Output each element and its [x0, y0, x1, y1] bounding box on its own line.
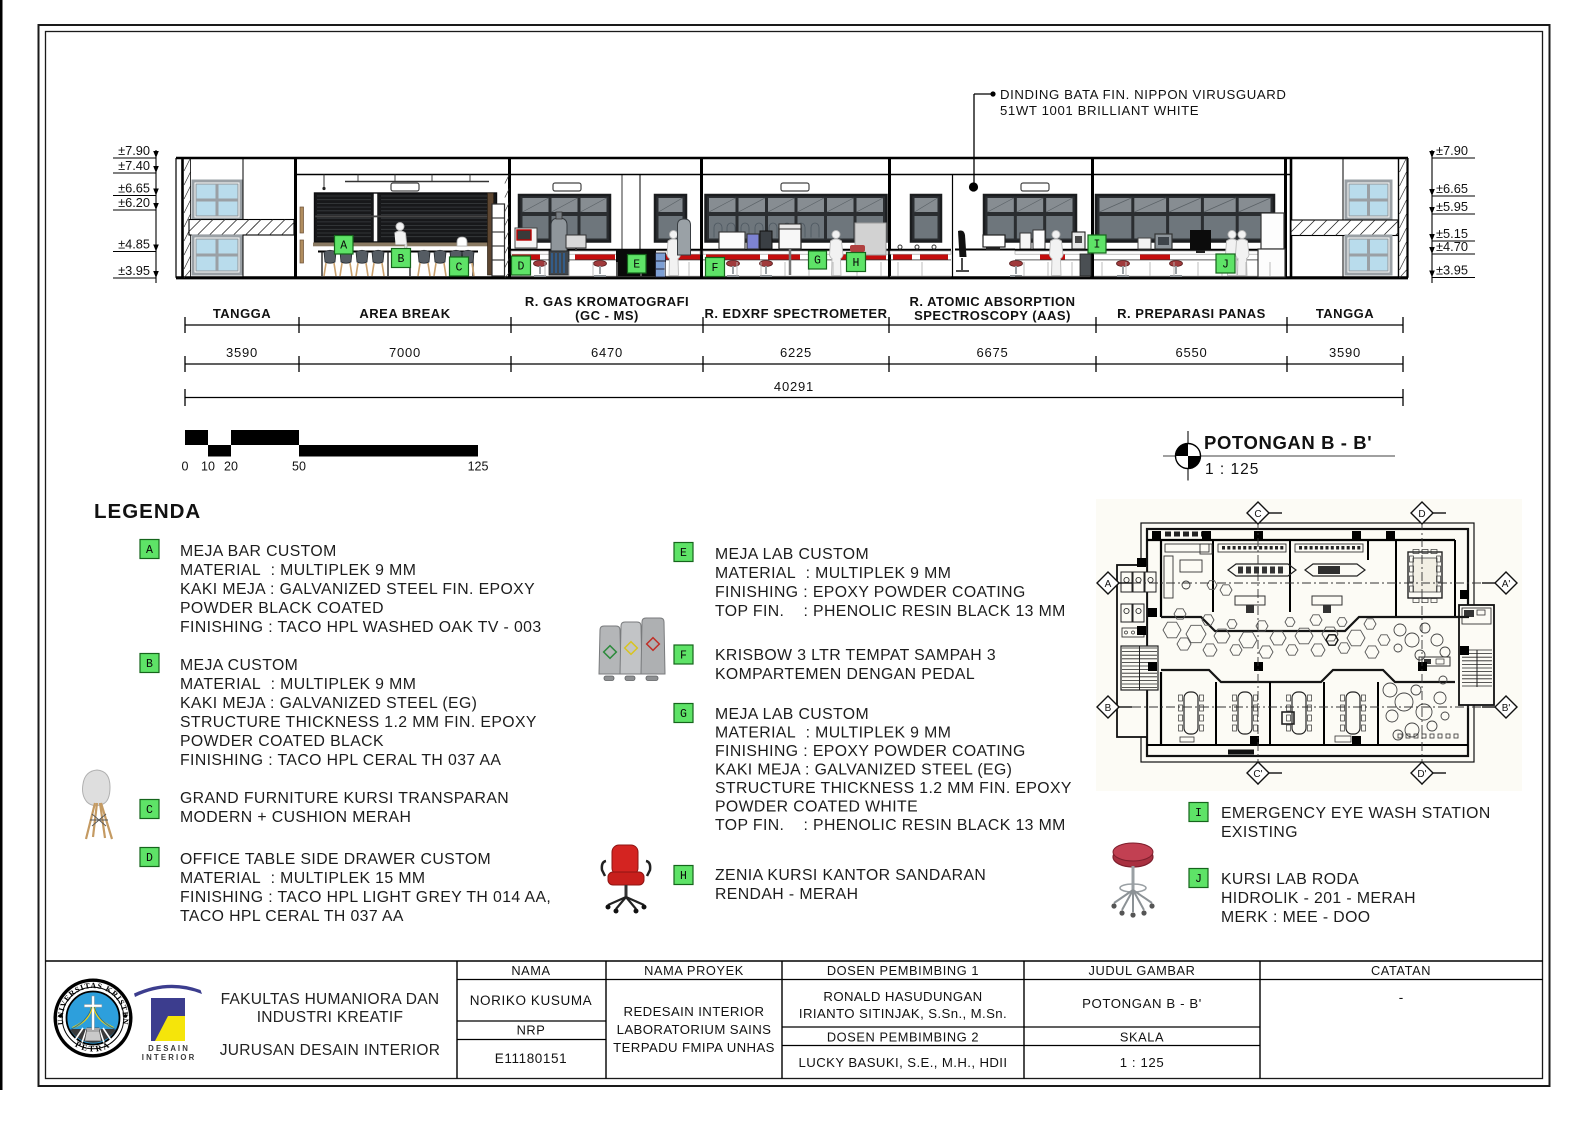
- svg-text:J: J: [1195, 873, 1202, 886]
- svg-text:KAKI MEJA : GALVANIZED STEEL (: KAKI MEJA : GALVANIZED STEEL (EG): [715, 762, 1012, 779]
- svg-text:KAKI MEJA : GALVANIZED STEEL (: KAKI MEJA : GALVANIZED STEEL (EG): [180, 695, 477, 712]
- svg-text:MERK : MEE - DOO: MERK : MEE - DOO: [1221, 909, 1370, 926]
- svg-text:AREA BREAK: AREA BREAK: [359, 306, 450, 321]
- svg-text:DINDING BATA FIN. NIPPON VIRUS: DINDING BATA FIN. NIPPON VIRUSGUARD: [1000, 87, 1287, 102]
- svg-text:TANGGA: TANGGA: [1316, 306, 1374, 321]
- svg-text:6550: 6550: [1175, 345, 1207, 360]
- svg-text:20: 20: [224, 460, 238, 474]
- svg-text:1 : 125: 1 : 125: [1120, 1055, 1165, 1070]
- svg-text:40291: 40291: [774, 379, 814, 394]
- svg-text:MATERIAL : MULTIPLEK 15 MM: MATERIAL : MULTIPLEK 15 MM: [180, 870, 425, 887]
- svg-text:A: A: [146, 544, 153, 557]
- svg-text:±7.90: ±7.90: [118, 143, 150, 158]
- svg-text:J: J: [1222, 259, 1229, 272]
- svg-text:H: H: [680, 870, 687, 883]
- svg-text:MATERIAL : MULTIPLEK 9 MM: MATERIAL : MULTIPLEK 9 MM: [180, 562, 416, 579]
- svg-text:JUDUL GAMBAR: JUDUL GAMBAR: [1089, 963, 1196, 978]
- svg-text:STRUCTURE THICKNESS 1.2 MM FIN: STRUCTURE THICKNESS 1.2 MM FIN. EPOXY: [715, 780, 1072, 797]
- svg-text:TOP FIN. : PHENOLIC RESIN B: TOP FIN. : PHENOLIC RESIN BLACK 13 MM: [715, 603, 1066, 620]
- svg-text:KAKI MEJA : GALVANIZED STEEL F: KAKI MEJA : GALVANIZED STEEL FIN. EPOXY: [180, 581, 535, 598]
- svg-text:6675: 6675: [976, 345, 1008, 360]
- svg-text:±3.95: ±3.95: [118, 263, 150, 278]
- svg-text:POWDER COATED BLACK: POWDER COATED BLACK: [180, 733, 384, 750]
- svg-text:A: A: [340, 240, 347, 253]
- svg-text:MEJA CUSTOM: MEJA CUSTOM: [180, 657, 298, 674]
- svg-text:G: G: [814, 255, 821, 268]
- svg-text:3590: 3590: [226, 345, 258, 360]
- svg-text:FINISHING : EPOXY POWDER COATI: FINISHING : EPOXY POWDER COATING: [715, 584, 1026, 601]
- svg-text:NRP: NRP: [517, 1023, 546, 1038]
- svg-text:D: D: [146, 852, 153, 865]
- svg-text:KURSI LAB RODA: KURSI LAB RODA: [1221, 871, 1359, 888]
- svg-text:MATERIAL : MULTIPLEK 9 MM: MATERIAL : MULTIPLEK 9 MM: [715, 725, 951, 742]
- svg-text:MATERIAL : MULTIPLEK 9 MM: MATERIAL : MULTIPLEK 9 MM: [715, 565, 951, 582]
- svg-text:FINISHING : EPOXY POWDER COATI: FINISHING : EPOXY POWDER COATING: [715, 743, 1026, 760]
- svg-text:MATERIAL : MULTIPLEK 9 MM: MATERIAL : MULTIPLEK 9 MM: [180, 676, 416, 693]
- svg-text:B': B': [1502, 703, 1511, 714]
- svg-text:R. PREPARASI PANAS: R. PREPARASI PANAS: [1117, 306, 1266, 321]
- svg-text:I: I: [1195, 807, 1202, 820]
- svg-text:KRISBOW 3 LTR TEMPAT SAMPAH 3: KRISBOW 3 LTR TEMPAT SAMPAH 3: [715, 647, 996, 664]
- svg-text:7000: 7000: [389, 345, 421, 360]
- svg-text:H: H: [853, 257, 860, 270]
- svg-text:SPECTROSCOPY (AAS): SPECTROSCOPY (AAS): [914, 308, 1071, 323]
- svg-text:FINISHING : TACO HPL LIGHT GRE: FINISHING : TACO HPL LIGHT GREY TH 014 A…: [180, 889, 551, 906]
- svg-text:R. EDXRF SPECTROMETER: R. EDXRF SPECTROMETER: [704, 306, 887, 321]
- svg-text:±4.70: ±4.70: [1436, 239, 1468, 254]
- svg-text:TOP FIN. : PHENOLIC RESIN B: TOP FIN. : PHENOLIC RESIN BLACK 13 MM: [715, 817, 1066, 834]
- svg-text:±6.20: ±6.20: [118, 195, 150, 210]
- svg-text:NORIKO KUSUMA: NORIKO KUSUMA: [470, 993, 593, 1008]
- svg-text:MODERN + CUSHION MERAH: MODERN + CUSHION MERAH: [180, 809, 411, 826]
- svg-text:±3.95: ±3.95: [1436, 263, 1468, 278]
- svg-text:NAMA PROYEK: NAMA PROYEK: [644, 963, 744, 978]
- svg-text:E: E: [633, 259, 640, 272]
- svg-text:±7.40: ±7.40: [118, 158, 150, 173]
- svg-text:E: E: [680, 547, 687, 560]
- svg-text:FAKULTAS HUMANIORA DAN: FAKULTAS HUMANIORA DAN: [221, 991, 440, 1008]
- svg-text:A: A: [1105, 579, 1112, 590]
- svg-text:SKALA: SKALA: [1120, 1030, 1164, 1045]
- svg-text:KOMPARTEMEN DENGAN PEDAL: KOMPARTEMEN DENGAN PEDAL: [715, 666, 975, 683]
- svg-text:FINISHING : TACO HPL CERAL TH: FINISHING : TACO HPL CERAL TH 037 AA: [180, 752, 501, 769]
- svg-text:F: F: [712, 262, 719, 275]
- svg-text:R. GAS KROMATOGRAFI: R. GAS KROMATOGRAFI: [525, 294, 689, 309]
- svg-text:D: D: [518, 261, 525, 274]
- svg-text:1 : 125: 1 : 125: [1205, 461, 1259, 478]
- svg-text:B: B: [1105, 703, 1112, 714]
- svg-text:±6.65: ±6.65: [118, 181, 150, 196]
- svg-text:I N T E R I O R: I N T E R I O R: [142, 1053, 195, 1062]
- svg-text:D: D: [1418, 509, 1425, 520]
- svg-text:G: G: [680, 708, 687, 721]
- svg-text:-: -: [1399, 990, 1404, 1005]
- svg-text:C': C': [1253, 769, 1262, 780]
- svg-text:E11180151: E11180151: [495, 1051, 567, 1066]
- svg-text:B: B: [146, 658, 153, 671]
- svg-text:POWDER BLACK COATED: POWDER BLACK COATED: [180, 600, 384, 617]
- svg-text:10: 10: [201, 460, 215, 474]
- svg-text:MEJA BAR CUSTOM: MEJA BAR CUSTOM: [180, 543, 337, 560]
- svg-text:MEJA LAB CUSTOM: MEJA LAB CUSTOM: [715, 546, 869, 563]
- svg-text:EMERGENCY EYE WASH STATION: EMERGENCY EYE WASH STATION: [1221, 805, 1491, 822]
- svg-text:RONALD HASUDUNGAN: RONALD HASUDUNGAN: [823, 989, 982, 1004]
- svg-text:HIDROLIK - 201 - MERAH: HIDROLIK - 201 - MERAH: [1221, 890, 1416, 907]
- svg-text:RENDAH - MERAH: RENDAH - MERAH: [715, 886, 858, 903]
- svg-text:±6.65: ±6.65: [1436, 181, 1468, 196]
- svg-text:REDESAIN INTERIOR: REDESAIN INTERIOR: [624, 1004, 765, 1019]
- svg-text:LABORATORIUM SAINS: LABORATORIUM SAINS: [617, 1022, 772, 1037]
- svg-text:A': A': [1502, 579, 1511, 590]
- svg-text:6225: 6225: [780, 345, 812, 360]
- svg-text:D E S A I N: D E S A I N: [148, 1044, 188, 1053]
- svg-text:3590: 3590: [1329, 345, 1361, 360]
- svg-text:NAMA: NAMA: [511, 963, 550, 978]
- svg-text:POWDER COATED WHITE: POWDER COATED WHITE: [715, 799, 918, 816]
- svg-text:ZENIA KURSI KANTOR SANDARAN: ZENIA KURSI KANTOR SANDARAN: [715, 867, 986, 884]
- svg-text:0: 0: [182, 460, 189, 474]
- svg-text:GRAND FURNITURE KURSI TRANSPAR: GRAND FURNITURE KURSI TRANSPARAN: [180, 790, 509, 807]
- svg-text:50: 50: [292, 460, 306, 474]
- svg-text:C: C: [456, 262, 463, 275]
- svg-text:C: C: [1254, 509, 1261, 520]
- svg-text:TACO HPL CERAL TH 037 AA: TACO HPL CERAL TH 037 AA: [180, 908, 404, 925]
- svg-text:DOSEN PEMBIMBING 2: DOSEN PEMBIMBING 2: [827, 1030, 979, 1045]
- svg-text:EXISTING: EXISTING: [1221, 824, 1298, 841]
- svg-text:POTONGAN B - B': POTONGAN B - B': [1204, 432, 1372, 453]
- svg-text:STRUCTURE THICKNESS 1.2 MM FIN: STRUCTURE THICKNESS 1.2 MM FIN. EPOXY: [180, 714, 537, 731]
- svg-text:±5.95: ±5.95: [1436, 199, 1468, 214]
- svg-text:51WT 1001 BRILLIANT WHITE: 51WT 1001 BRILLIANT WHITE: [1000, 103, 1199, 118]
- svg-text:±7.90: ±7.90: [1436, 143, 1468, 158]
- svg-text:±4.85: ±4.85: [118, 237, 150, 252]
- svg-text:INDUSTRI KREATIF: INDUSTRI KREATIF: [257, 1009, 404, 1026]
- svg-text:F: F: [680, 650, 687, 663]
- svg-text:LUCKY BASUKI, S.E., M.H., HDII: LUCKY BASUKI, S.E., M.H., HDII: [799, 1055, 1008, 1070]
- svg-text:TANGGA: TANGGA: [213, 306, 271, 321]
- svg-text:JURUSAN DESAIN INTERIOR: JURUSAN DESAIN INTERIOR: [220, 1042, 440, 1059]
- svg-text:CATATAN: CATATAN: [1371, 963, 1431, 978]
- svg-text:FINISHING : TACO HPL WASHED OA: FINISHING : TACO HPL WASHED OAK TV - 003: [180, 619, 542, 636]
- svg-text:125: 125: [468, 460, 489, 474]
- svg-text:B: B: [398, 253, 405, 266]
- svg-text:IRIANTO SITINJAK, S.Sn., M.Sn.: IRIANTO SITINJAK, S.Sn., M.Sn.: [799, 1006, 1007, 1021]
- svg-text:D': D': [1417, 769, 1426, 780]
- svg-text:DOSEN PEMBIMBING 1: DOSEN PEMBIMBING 1: [827, 963, 979, 978]
- svg-text:R. ATOMIC ABSORPTION: R. ATOMIC ABSORPTION: [910, 294, 1076, 309]
- svg-text:MEJA LAB CUSTOM: MEJA LAB CUSTOM: [715, 706, 869, 723]
- svg-text:I: I: [1094, 239, 1101, 252]
- svg-text:(GC - MS): (GC - MS): [575, 308, 639, 323]
- svg-text:6470: 6470: [591, 345, 623, 360]
- svg-text:TERPADU FMIPA UNHAS: TERPADU FMIPA UNHAS: [613, 1040, 775, 1055]
- svg-text:C: C: [146, 804, 153, 817]
- svg-text:OFFICE TABLE SIDE DRAWER CUSTO: OFFICE TABLE SIDE DRAWER CUSTOM: [180, 851, 491, 868]
- svg-text:LEGENDA: LEGENDA: [94, 500, 201, 523]
- svg-text:POTONGAN B - B': POTONGAN B - B': [1082, 996, 1202, 1011]
